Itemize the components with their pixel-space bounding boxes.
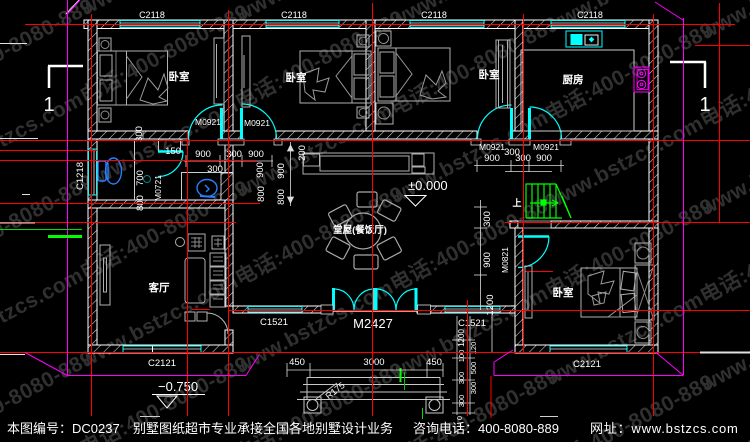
svg-text:150: 150: [165, 146, 181, 157]
svg-text:1200: 1200: [457, 329, 466, 347]
svg-text:卧室: 卧室: [286, 71, 307, 84]
svg-text:C1521: C1521: [260, 317, 288, 328]
svg-text:C2118: C2118: [577, 10, 603, 20]
svg-text:3000: 3000: [363, 357, 384, 368]
svg-text:C2118: C2118: [281, 10, 307, 20]
svg-text:M0921: M0921: [479, 142, 505, 152]
svg-text:300: 300: [457, 372, 466, 385]
svg-text:300: 300: [504, 147, 520, 158]
svg-text:300: 300: [482, 211, 493, 227]
svg-text:1: 1: [699, 94, 710, 116]
svg-text:M0821: M0821: [500, 247, 510, 273]
svg-text:200: 200: [297, 145, 308, 161]
svg-text:M0921: M0921: [195, 117, 221, 127]
svg-text:上: 上: [512, 197, 521, 208]
svg-text:900: 900: [248, 149, 264, 160]
svg-text:300: 300: [134, 126, 145, 142]
svg-text:本图编号：DC0237: 本图编号：DC0237: [7, 421, 120, 436]
svg-text:M0721: M0721: [153, 175, 163, 201]
svg-text:M0921: M0921: [533, 142, 559, 152]
svg-text:C1218: C1218: [75, 162, 86, 190]
svg-text:900: 900: [276, 163, 287, 179]
svg-text:300: 300: [207, 164, 223, 175]
svg-text:300: 300: [469, 382, 478, 395]
svg-text:咨询电话：400-8080-889: 咨询电话：400-8080-889: [413, 421, 559, 436]
svg-text:500: 500: [469, 362, 478, 375]
svg-text:450: 450: [426, 357, 442, 368]
svg-text:300: 300: [457, 395, 466, 408]
svg-text:C2118: C2118: [139, 10, 165, 20]
svg-text:900: 900: [484, 153, 500, 164]
svg-text:1: 1: [43, 94, 54, 116]
svg-text:700: 700: [135, 170, 146, 186]
svg-text:C2118: C2118: [421, 10, 447, 20]
svg-text:卧室: 卧室: [479, 68, 500, 81]
svg-text:900: 900: [255, 162, 266, 178]
svg-text:900: 900: [482, 252, 493, 268]
svg-text:厨房: 厨房: [563, 73, 584, 86]
svg-text:卧室: 卧室: [553, 286, 574, 299]
svg-text:C1521: C1521: [458, 318, 486, 329]
svg-text:C2121: C2121: [573, 359, 601, 370]
svg-text:0: 0: [455, 416, 464, 420]
svg-text:800: 800: [256, 186, 267, 202]
svg-text:M0921: M0921: [244, 118, 270, 128]
svg-text:900: 900: [536, 153, 552, 164]
svg-text:−0.750: −0.750: [158, 379, 198, 394]
svg-text:450: 450: [289, 357, 305, 368]
svg-text:C2121: C2121: [148, 358, 176, 369]
svg-text:1200: 1200: [485, 294, 496, 315]
svg-text:±0.000: ±0.000: [408, 178, 448, 193]
svg-text:100: 100: [457, 350, 466, 363]
svg-text:900: 900: [195, 149, 211, 160]
svg-text:别墅图纸超市专业承接全国各地别墅设计业务: 别墅图纸超市专业承接全国各地别墅设计业务: [133, 421, 393, 436]
svg-text:网址：www.bstzcs.com: 网址：www.bstzcs.com: [590, 421, 739, 436]
svg-text:800: 800: [276, 189, 287, 205]
svg-text:卧室: 卧室: [169, 70, 190, 83]
svg-text:客厅: 客厅: [148, 281, 170, 294]
svg-text:堂屋(餐饭厅): 堂屋(餐饭厅): [333, 224, 387, 236]
